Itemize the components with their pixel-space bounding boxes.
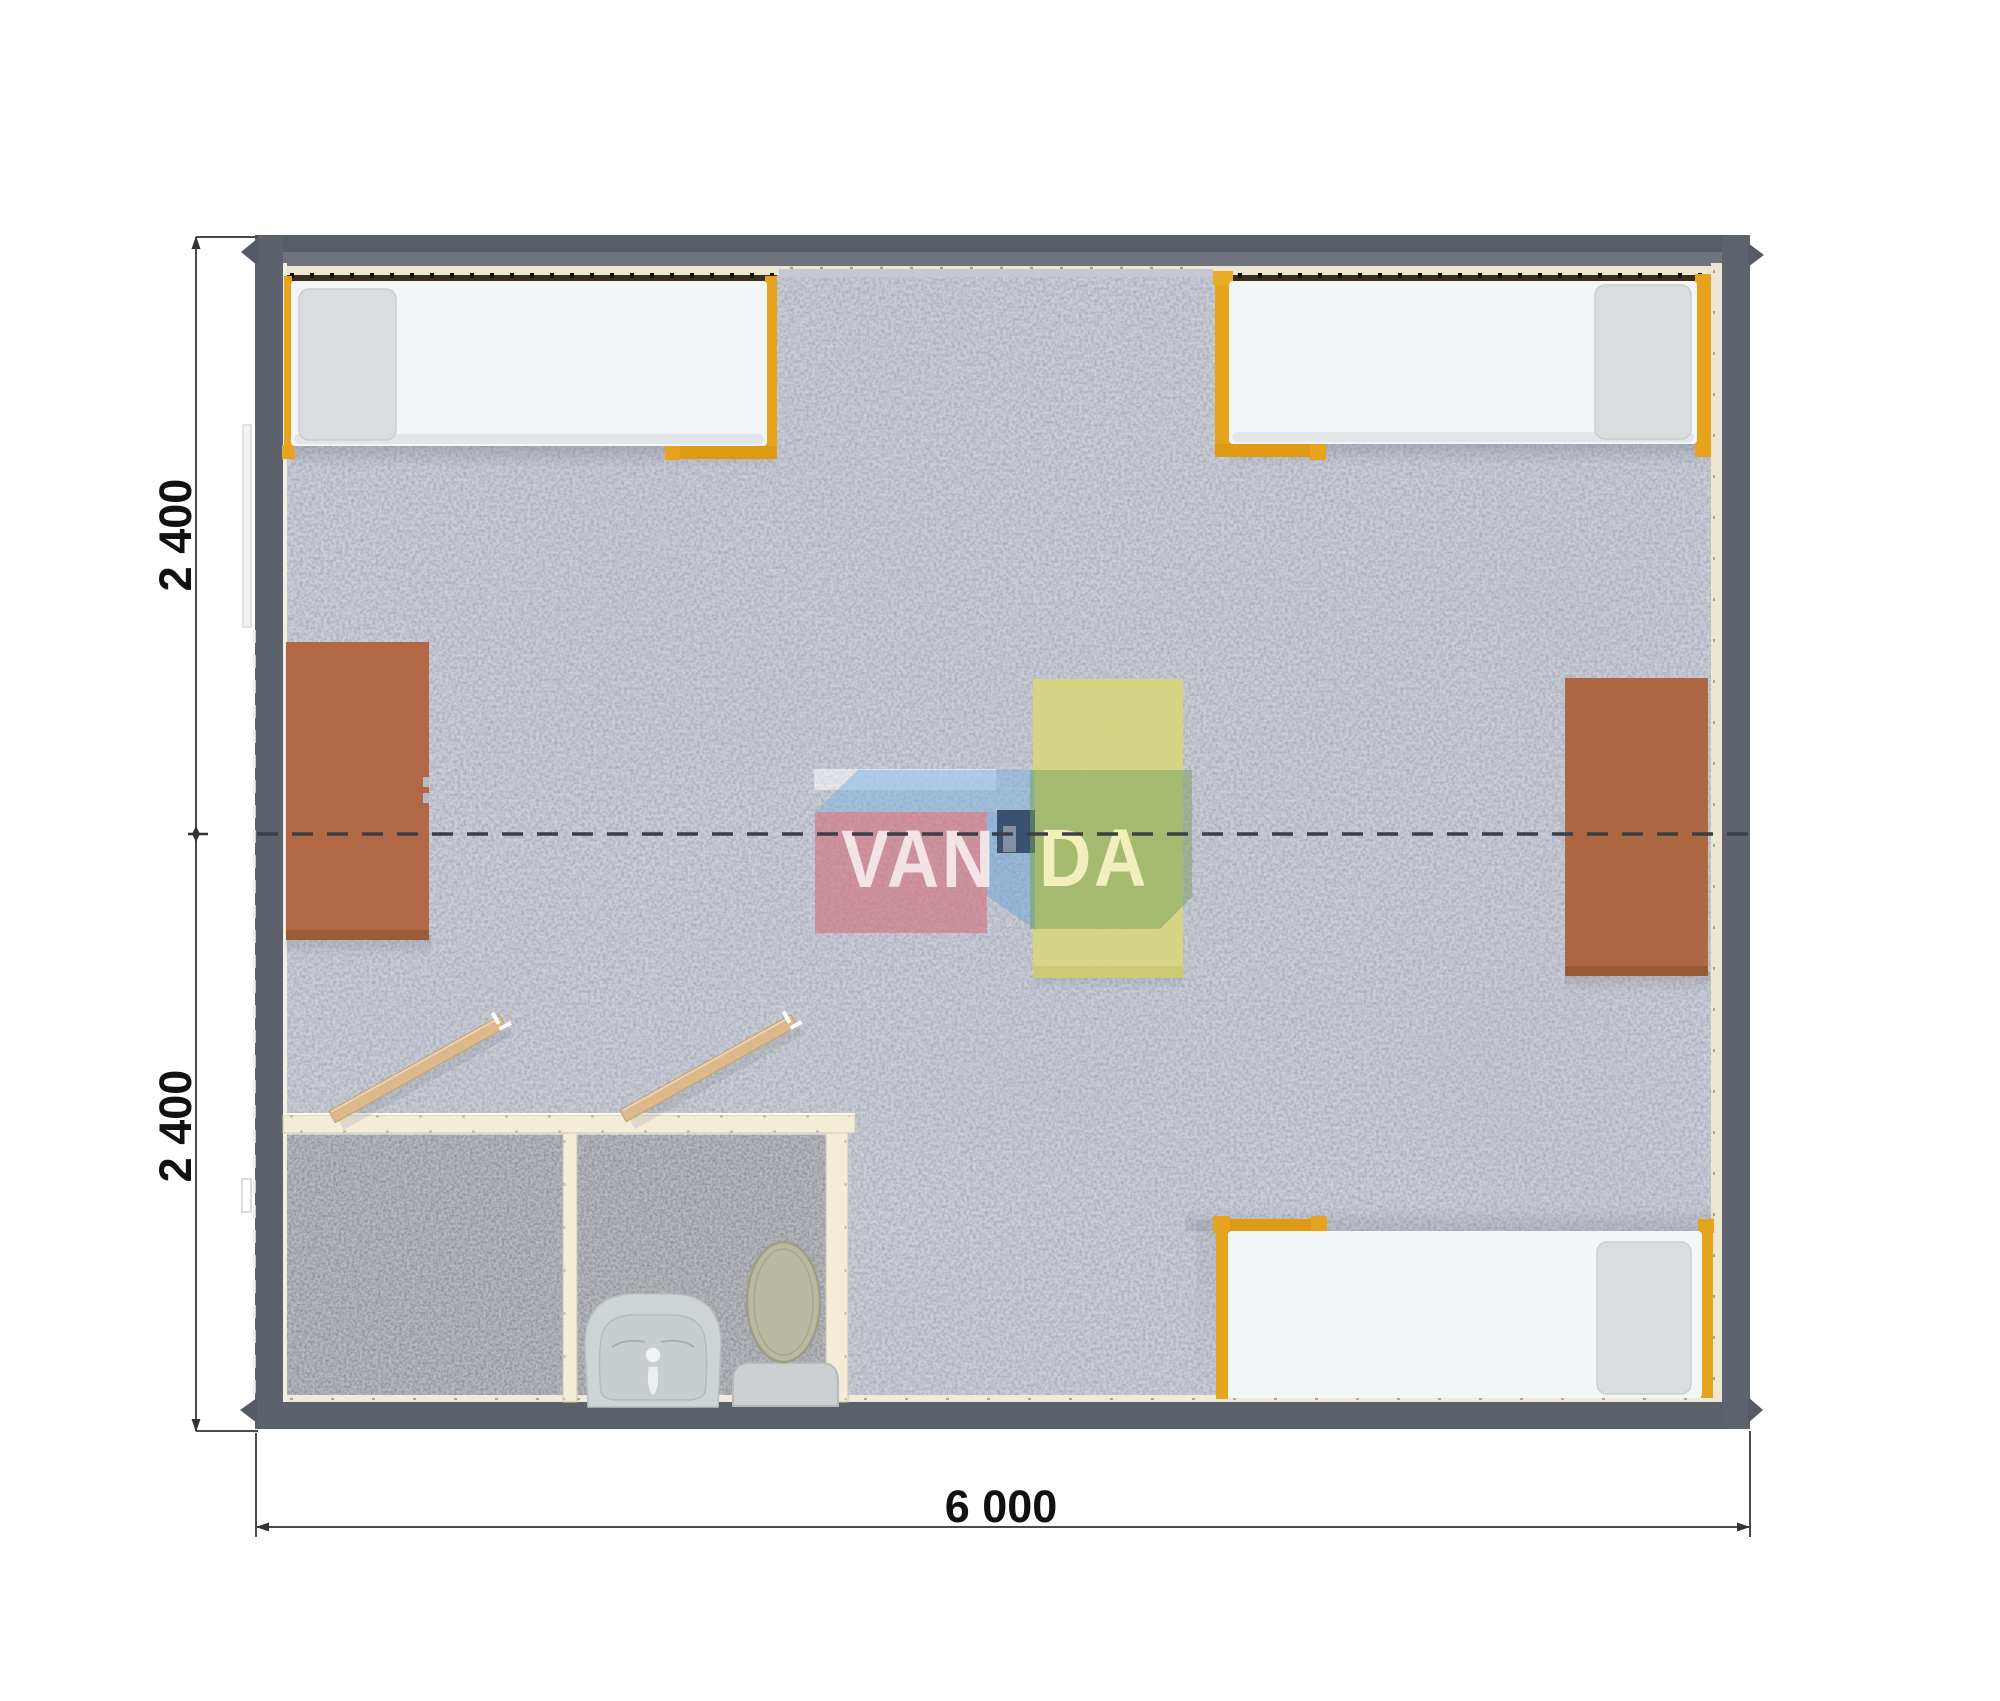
svg-text:VAN: VAN (841, 814, 997, 905)
svg-text:DA: DA (1039, 813, 1149, 904)
svg-text:2 400: 2 400 (150, 1070, 201, 1183)
svg-text:2 400: 2 400 (150, 479, 201, 592)
svg-text:6 000: 6 000 (945, 1481, 1058, 1532)
